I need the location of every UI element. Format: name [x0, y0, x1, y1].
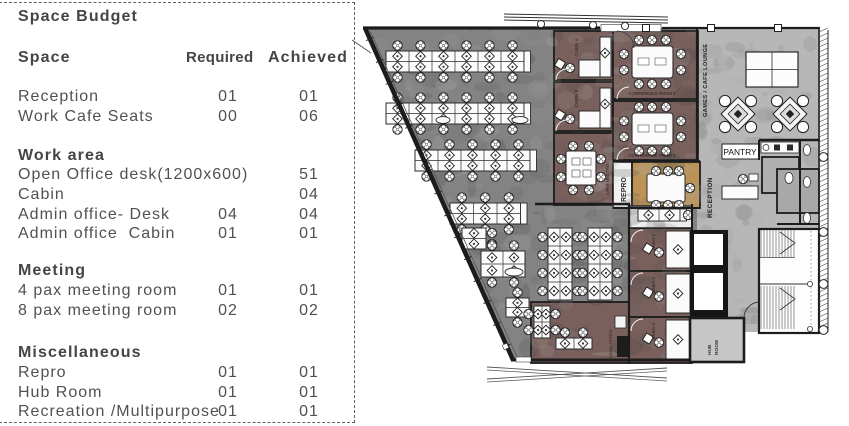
- svg-text:RECEPTION: RECEPTION: [707, 177, 714, 218]
- svg-text:HUB: HUB: [707, 344, 713, 355]
- svg-text:REPRO: REPRO: [621, 177, 628, 202]
- svg-text:ROOM: ROOM: [714, 340, 720, 355]
- svg-text:GAMES / CAFE LOUNGE: GAMES / CAFE LOUNGE: [703, 44, 709, 118]
- svg-text:CABIN 3: CABIN 3: [651, 322, 656, 339]
- svg-text:ADMIN OFFICE: ADMIN OFFICE: [608, 329, 613, 358]
- svg-text:CONFERENCE ROOM 2: CONFERENCE ROOM 2: [629, 91, 677, 96]
- svg-text:4 PAX MEETING: 4 PAX MEETING: [605, 163, 610, 195]
- svg-text:CABIN 4: CABIN 4: [574, 39, 579, 57]
- svg-text:CABIN 1: CABIN 1: [651, 233, 656, 250]
- svg-text:CONFERENCE ROOM 2: CONFERENCE ROOM 2: [629, 153, 677, 158]
- svg-text:PANTRY: PANTRY: [723, 147, 757, 157]
- svg-text:CABIN 2: CABIN 2: [651, 276, 656, 293]
- svg-text:CABIN 3: CABIN 3: [574, 90, 579, 108]
